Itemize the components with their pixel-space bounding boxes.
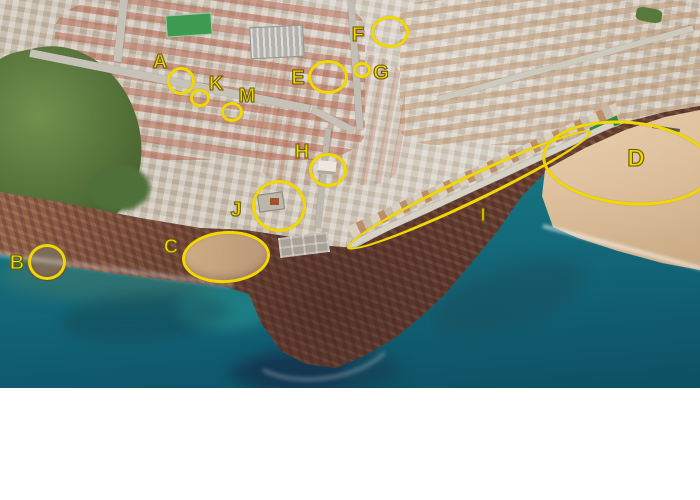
screenshot: ABCDEFGHIJKM ASeafront Luz Apartment DPr… <box>0 0 700 500</box>
marker-letter-j: J <box>230 200 241 220</box>
marker-ring-i <box>341 119 597 261</box>
marker-letter-d: D <box>627 147 644 171</box>
marker-ring-e <box>308 60 348 94</box>
marker-ring-c <box>180 228 271 286</box>
marker-letter-a: A <box>153 52 167 72</box>
aerial-map: ABCDEFGHIJKM <box>0 0 700 388</box>
marker-letter-k: K <box>209 74 223 94</box>
marker-letter-b: B <box>10 253 24 273</box>
marker-letter-m: M <box>239 86 256 106</box>
marker-ring-a <box>167 67 195 95</box>
marker-letter-f: F <box>352 25 364 45</box>
marker-ring-j <box>252 180 306 232</box>
marker-letter-e: E <box>291 68 304 88</box>
marker-ring-k <box>190 89 210 107</box>
annotation-layer: ABCDEFGHIJKM <box>0 0 700 388</box>
marker-ring-d <box>539 114 700 213</box>
marker-ring-f <box>371 16 409 48</box>
marker-ring-b <box>28 244 66 280</box>
marker-letter-c: C <box>164 237 178 257</box>
marker-letter-g: G <box>373 63 389 83</box>
marker-letter-h: H <box>295 142 309 162</box>
marker-ring-g <box>353 62 371 78</box>
marker-letter-i: I <box>480 206 485 224</box>
marker-ring-h <box>309 153 347 187</box>
